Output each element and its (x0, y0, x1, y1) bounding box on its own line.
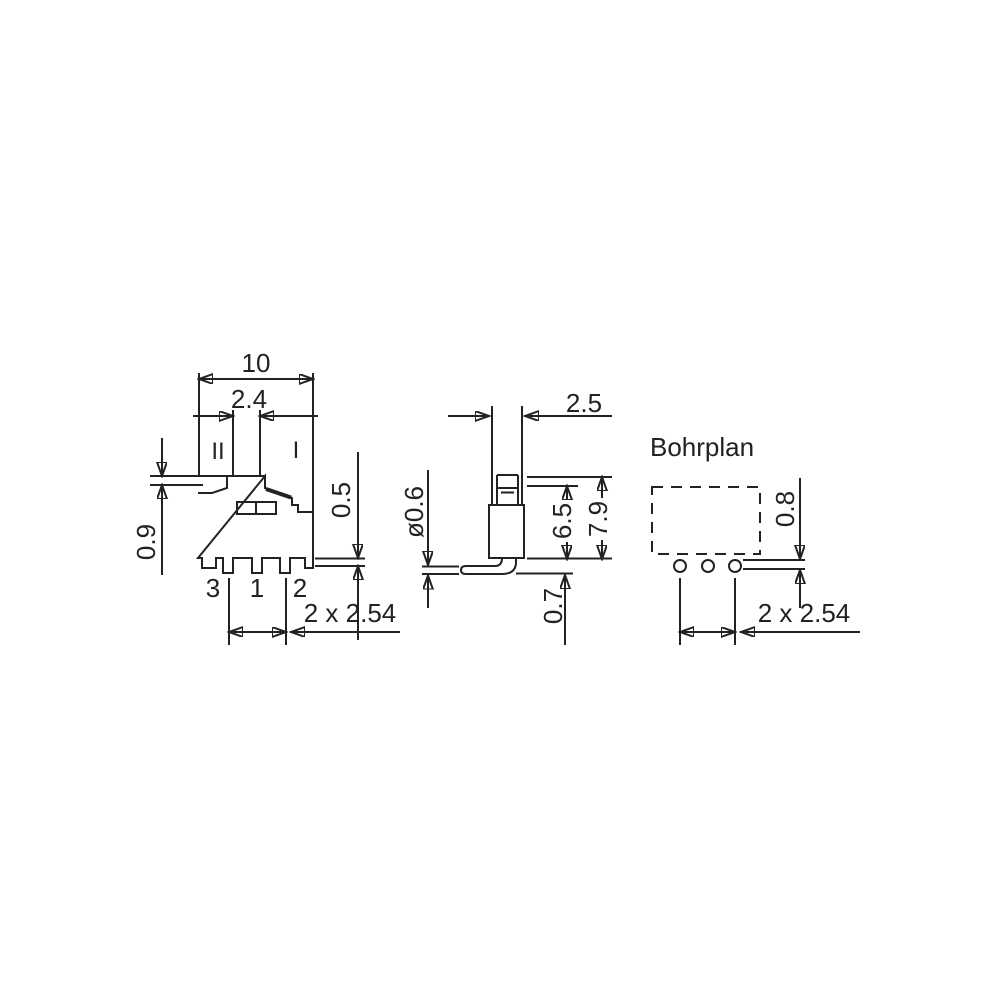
drill-hole-1 (674, 560, 686, 572)
dim-pin-diameter-label: ø0.6 (399, 486, 429, 538)
pin1-label: 1 (250, 573, 264, 603)
front-body-outline (198, 476, 313, 573)
dim-overall-width-label: 10 (242, 348, 271, 378)
dim-body-height-label: 6.5 (547, 503, 577, 539)
position-marking-I: I (293, 437, 300, 464)
dim-knob-height-label: 0.9 (131, 524, 161, 560)
front-view: 10 2.4 II I 0.9 0.5 3 1 2 2 x 2.54 (131, 348, 400, 645)
side-knob-detail (497, 475, 518, 505)
position-marking-II: II (211, 438, 224, 465)
drill-plan-view: Bohrplan 0.8 2 x 2.54 (650, 432, 860, 645)
technical-drawing-page: 10 2.4 II I 0.9 0.5 3 1 2 2 x 2.54 (0, 0, 1000, 1000)
side-view: 2.5 ø0.6 6.5 7.9 0.7 (399, 388, 613, 645)
drill-hole-3 (729, 560, 741, 572)
drill-plan-title: Bohrplan (650, 432, 754, 462)
side-body (489, 505, 524, 558)
dim-total-height-label: 7.9 (583, 501, 613, 537)
dim-knob-width-label: 2.4 (231, 384, 267, 414)
drill-plan-body-outline (652, 487, 760, 554)
drill-pitch-label: 2 x 2.54 (758, 598, 851, 628)
side-pin (461, 558, 516, 574)
dim-pin-projection-label: 0.7 (538, 588, 568, 624)
slide-switch-dimension-drawing: 10 2.4 II I 0.9 0.5 3 1 2 2 x 2.54 (0, 0, 1000, 1000)
dim-standoff-label: 0.5 (326, 482, 356, 518)
front-body-bevel (266, 489, 291, 498)
drill-hole-2 (702, 560, 714, 572)
dim-edge-offset-label: 0.8 (770, 491, 800, 527)
dim-depth-label: 2.5 (566, 388, 602, 418)
pin3-label: 3 (206, 573, 220, 603)
front-pitch-label: 2 x 2.54 (304, 598, 397, 628)
